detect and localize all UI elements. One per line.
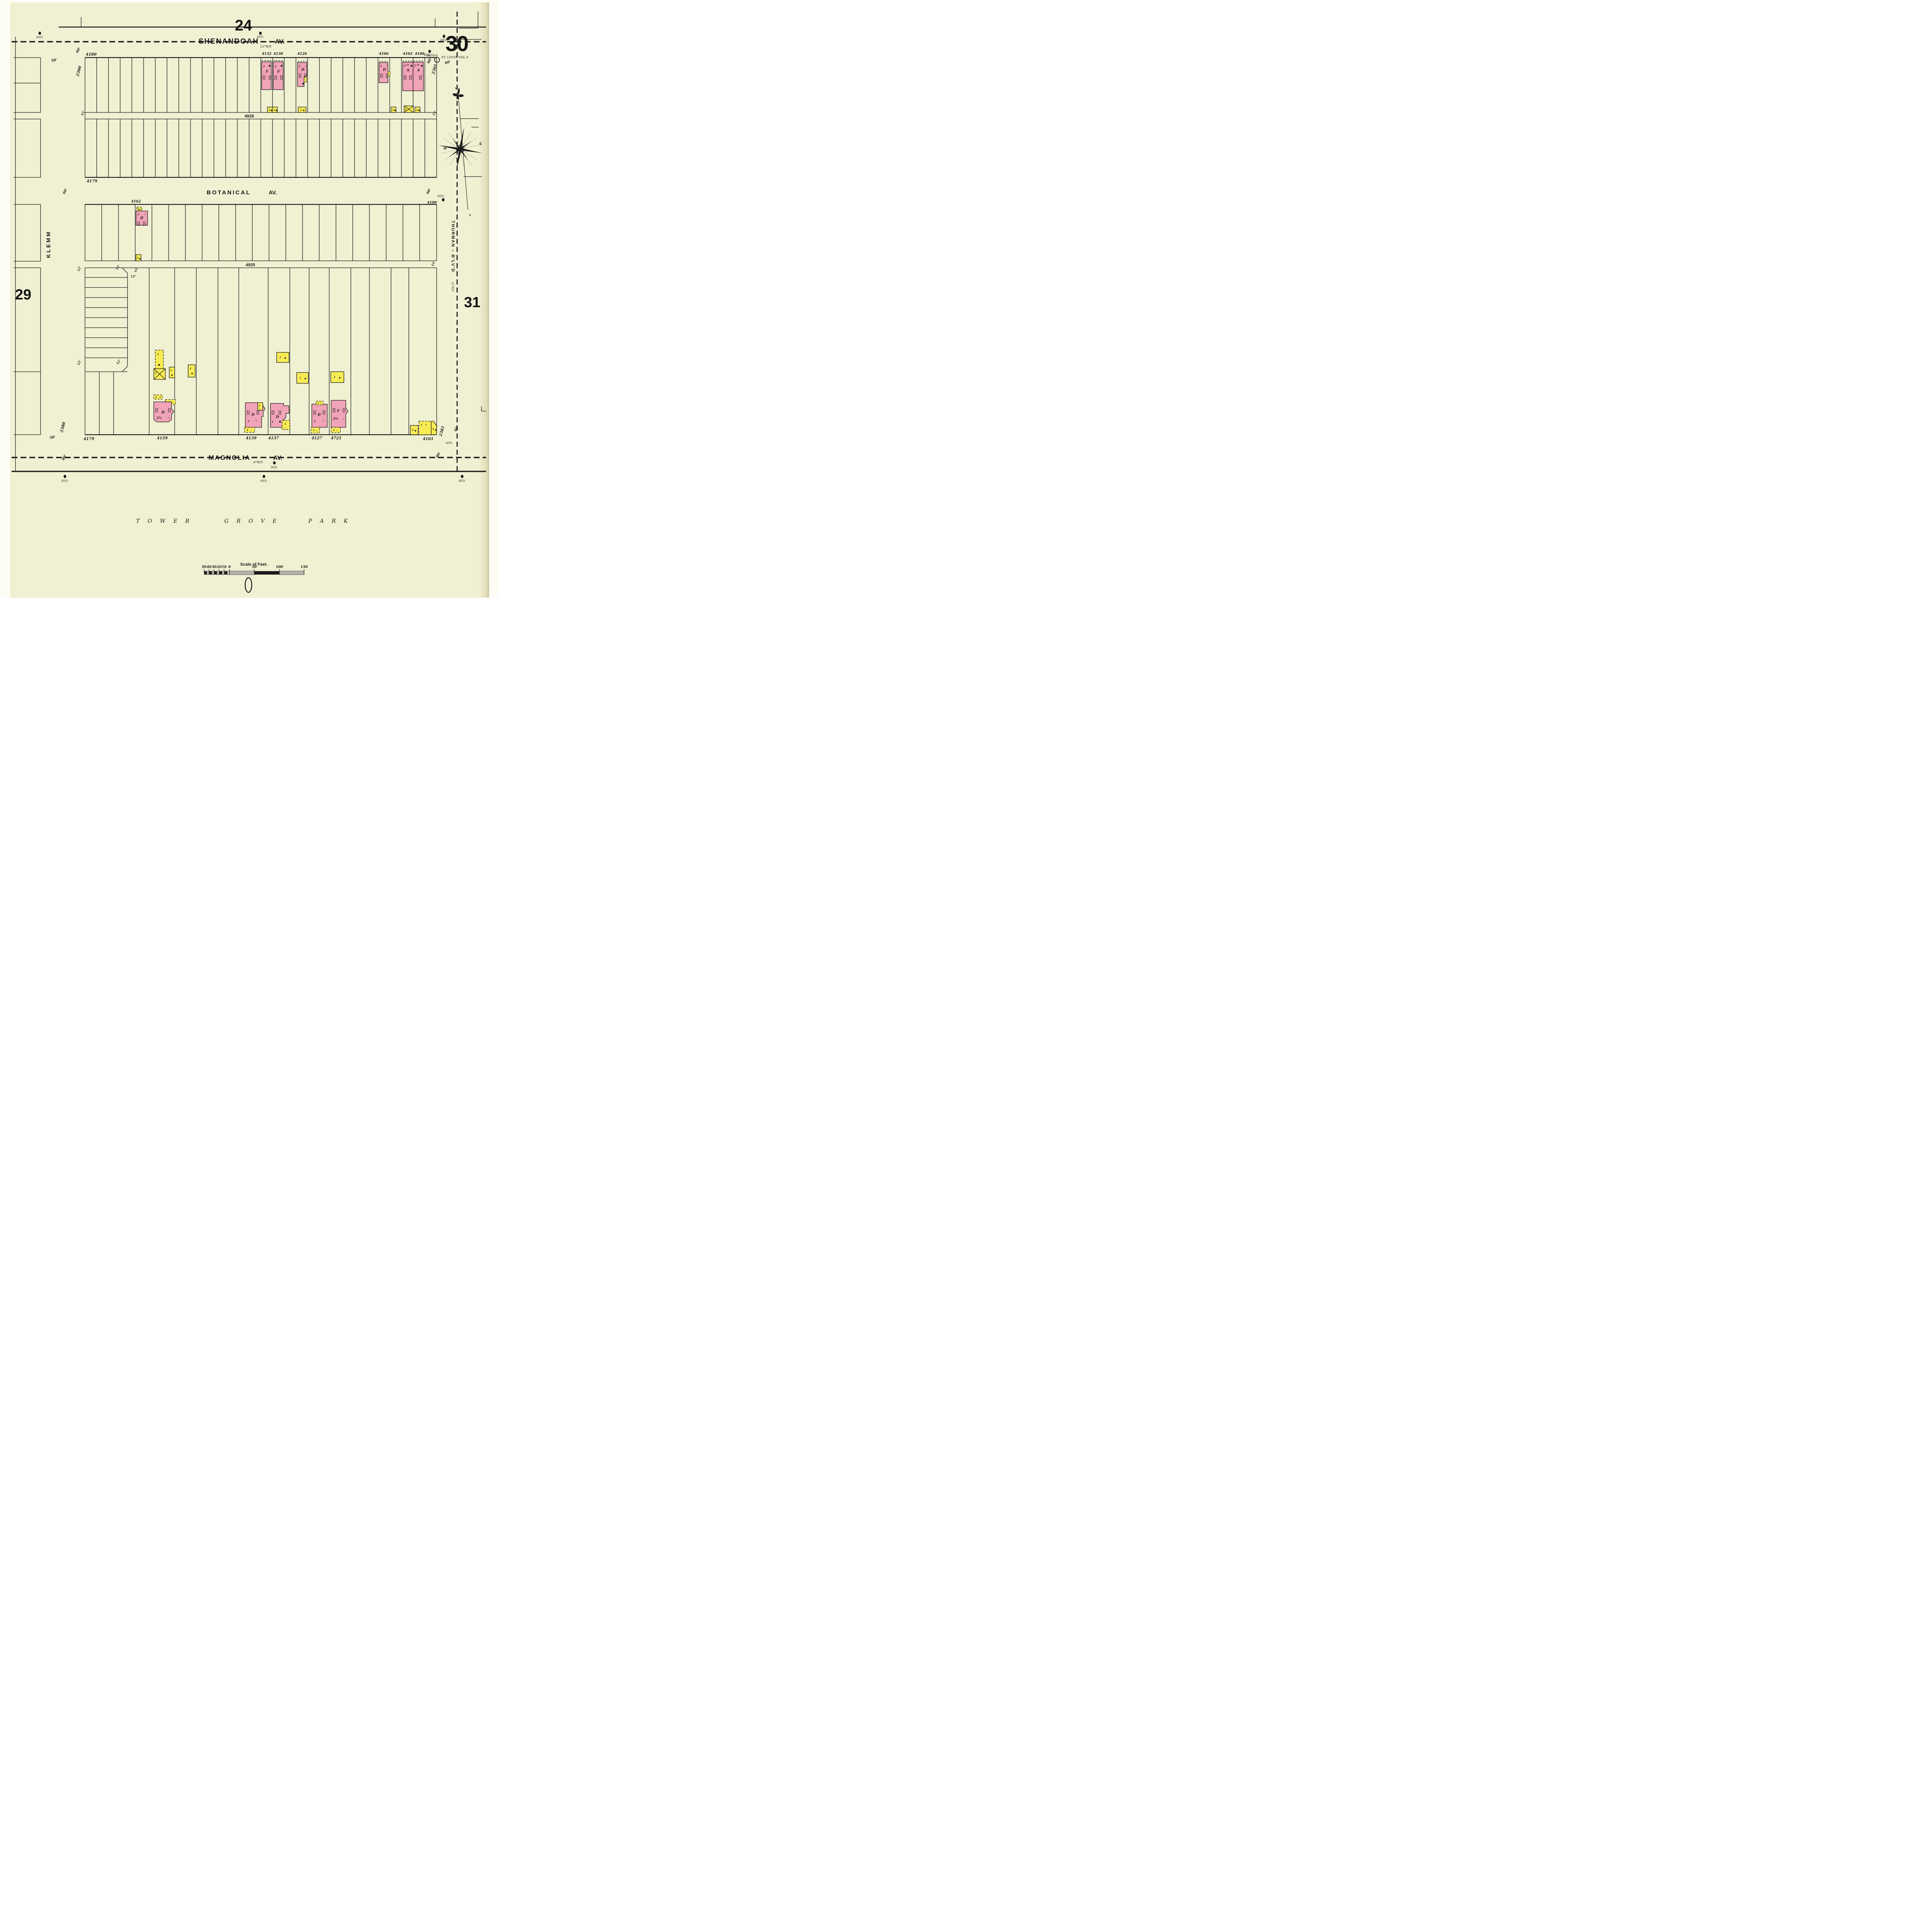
map-label: G R O V E	[224, 518, 279, 524]
building-annotation: ○	[386, 65, 388, 67]
building-annotation: 12	[342, 410, 345, 413]
building-annotation: D	[251, 413, 255, 417]
building-annotation: 1o	[138, 208, 141, 211]
building-annotation: S	[407, 69, 410, 73]
building-annotation: 26'	[406, 64, 410, 66]
map-label: ST. LOUIS VOL.9	[441, 56, 468, 59]
map-label: 4179	[83, 437, 94, 441]
dwelling-4159: 1212D12122½○	[154, 402, 174, 422]
adjacent-sheet-number-north: 24	[232, 17, 255, 34]
building-annotation: D	[383, 68, 386, 72]
building-annotation: 1	[155, 396, 157, 399]
building-annotation: 12	[313, 413, 316, 415]
building-annotation: 1	[334, 376, 335, 379]
map-label: 4130	[273, 52, 283, 56]
hydrant-dot	[39, 32, 41, 35]
building-annotation: D	[301, 68, 304, 72]
building-annotation: F	[277, 70, 280, 74]
porch-4127b-outline	[311, 427, 320, 433]
scale-title: Scale of Feet.	[240, 562, 268, 567]
building-annotation: 2	[380, 65, 382, 68]
scale-segment	[279, 571, 304, 575]
scale-tick-label: 10	[222, 565, 227, 569]
dwelling-4106: 2D○12121212	[379, 63, 388, 83]
building-annotation: 12	[380, 76, 383, 78]
dwelling-4162: 2D○12121212	[136, 211, 148, 226]
hydrant-dot	[263, 475, 265, 478]
hydrant-dot	[64, 475, 66, 478]
building-annotation: 12	[137, 224, 140, 226]
shed: 1●	[331, 372, 344, 383]
building-annotation: 12	[332, 410, 335, 413]
building-annotation: 2	[271, 421, 273, 423]
building-annotation: 1	[412, 429, 413, 432]
map-label: W	[444, 147, 447, 150]
map-label: HYD.	[446, 442, 453, 445]
shed-4101: 1✕	[419, 421, 431, 435]
map-label: T O W E R	[136, 518, 192, 524]
building-annotation: ○	[255, 419, 257, 422]
building-annotation: 12	[280, 78, 283, 80]
building-annotation: D	[161, 411, 165, 415]
scale-segment	[217, 571, 219, 575]
building-annotation: 12	[168, 410, 171, 413]
scale-tick-label: 0	[228, 565, 231, 569]
building-annotation: 1	[392, 109, 394, 112]
building-annotation: ●	[279, 420, 281, 423]
building-annotation: ●	[270, 109, 272, 112]
building-annotation: ●	[303, 109, 305, 112]
building-annotation: 12	[247, 413, 250, 415]
dwelling-4127: 1212D12122○	[312, 404, 327, 427]
scale-tick-label: 20	[216, 565, 222, 569]
scale-tick-label: 40	[207, 565, 212, 569]
shed-4106-outline	[388, 72, 390, 76]
porch-4159: 1✕	[154, 395, 162, 399]
map-label: SHENANDOAH	[199, 37, 259, 46]
map-label: HYD.	[437, 195, 444, 198]
building-annotation: ●	[191, 372, 193, 375]
building-annotation: 12	[256, 413, 259, 415]
paper	[10, 2, 489, 598]
map-label: 4926	[245, 114, 254, 119]
scale-segment	[212, 571, 214, 575]
building-annotation: D	[140, 216, 143, 220]
building-annotation: ○	[259, 408, 261, 410]
building-annotation: ○	[250, 429, 252, 432]
building-annotation: 2	[137, 213, 139, 216]
map-label: 6"W.P.	[253, 461, 263, 464]
building-annotation: 1	[318, 402, 319, 405]
building-annotation: ●	[415, 430, 417, 432]
map-label: 12"W.P.	[260, 45, 272, 48]
flat-4721-outline	[331, 400, 348, 427]
building-annotation: 26'	[416, 64, 420, 66]
building-annotation: ●	[281, 65, 282, 67]
building-annotation: 12	[298, 76, 301, 78]
map-label: 4162	[131, 200, 141, 204]
shed: 1●	[391, 107, 396, 112]
building-annotation: 12	[262, 78, 265, 80]
map-label: THURMAN – B'LV'D	[451, 221, 455, 272]
map-label: 4137	[268, 436, 279, 440]
shed: 1●	[188, 365, 195, 377]
scale-tick-label: 100	[276, 565, 284, 569]
map-label: 4102	[403, 52, 412, 56]
building-annotation: 1	[333, 429, 335, 432]
building-annotation: ●	[284, 357, 286, 359]
shed-outline	[331, 372, 344, 383]
building-annotation: ●	[418, 109, 420, 112]
map-label: 4100	[427, 201, 437, 205]
building-annotation: 1	[284, 423, 286, 426]
map-label: P A R K	[308, 518, 351, 524]
building-annotation: ●	[171, 374, 173, 376]
building-annotation: ●	[276, 109, 277, 112]
shed-outline	[297, 372, 308, 383]
building-annotation: ●	[435, 429, 437, 431]
map-label: HYD.	[458, 480, 466, 483]
map-label: HYD.	[423, 54, 431, 57]
map-label: 4126	[297, 52, 307, 56]
building-annotation: 2	[313, 420, 315, 423]
shed-outline	[298, 107, 306, 112]
map-label: 4139	[246, 436, 257, 440]
building-annotation: 12	[403, 78, 406, 80]
shed: 1●	[277, 352, 289, 362]
building-annotation: F	[337, 409, 340, 413]
shed: 1●	[410, 425, 418, 435]
building-annotation: ●	[302, 82, 304, 85]
scale-segment	[227, 571, 230, 575]
map-label: 4106	[379, 52, 389, 56]
building-annotation: 1	[416, 109, 418, 112]
map-label: HYD.	[270, 466, 278, 469]
building-annotation: 2	[403, 65, 405, 67]
porch-4137: 1○	[282, 420, 290, 430]
flat-4721: 1212F12122½○	[331, 400, 348, 427]
building-annotation: ●	[269, 65, 270, 67]
barn: 1●	[155, 350, 163, 369]
building-annotation: 12	[155, 410, 158, 413]
adjacent-sheet-number-west: 29	[12, 287, 35, 303]
building-annotation: 1	[313, 429, 315, 432]
scale-tick-label: 150	[301, 565, 308, 569]
map-label: N	[455, 87, 457, 90]
map-canvas: 2F●121212122F●121212122D○12121212●○2D○12…	[0, 0, 498, 598]
building-annotation: 1	[279, 356, 281, 359]
adjacent-sheet-number-east: 31	[461, 294, 484, 311]
building-annotation: 1	[190, 367, 191, 370]
building-annotation: 2½	[333, 417, 338, 420]
building-annotation: ●	[158, 364, 160, 366]
shed-4106	[388, 72, 390, 76]
building-annotation: ●	[339, 377, 341, 379]
map-label: AV.	[275, 38, 285, 45]
shed-outline	[410, 425, 418, 435]
building-annotation: ○	[320, 402, 322, 405]
building-annotation: 2	[247, 420, 249, 423]
porch-4139b: 1○	[245, 427, 255, 432]
building-annotation: 1	[299, 377, 301, 379]
building-annotation: 1	[137, 257, 139, 260]
building-annotation: 12	[271, 413, 274, 415]
building-annotation: ○	[342, 418, 344, 420]
building-annotation: 1	[300, 109, 302, 112]
store-4100: 226'S●1212	[413, 62, 423, 91]
porch-4127t: 1○	[316, 401, 323, 405]
porch-4139t: 1○	[258, 403, 263, 410]
hydrant-dot	[429, 50, 431, 53]
shed: 1●	[415, 107, 420, 112]
scale-tick-label: 50	[202, 565, 207, 569]
building-annotation: ○	[144, 213, 146, 216]
map-label: HYD.	[36, 36, 43, 39]
building-annotation: 2	[414, 65, 416, 67]
porch-4139b-outline	[245, 427, 255, 432]
hydrant-dot	[461, 475, 464, 478]
shed-4101-outline	[419, 421, 431, 435]
building-annotation: ●	[421, 65, 423, 67]
map-label: 4101	[423, 437, 434, 441]
building-annotation: D	[276, 415, 279, 419]
porch-4127b: 1○	[311, 427, 320, 433]
sanborn-map-sheet: 2F●121212122F●121212122D○12121212●○2D○12…	[0, 0, 498, 598]
map-label: KLEMM	[45, 230, 51, 258]
building-annotation: D	[317, 413, 321, 417]
porch-4721-outline	[331, 427, 340, 433]
sheet-number: 30	[441, 31, 472, 56]
building-annotation: 12	[409, 78, 412, 80]
map-label: HYD.	[257, 36, 264, 39]
shed-outline	[188, 365, 195, 377]
building-annotation: 1	[274, 109, 275, 112]
scale-tick-label: 30	[212, 565, 217, 569]
shed: 1●	[267, 107, 272, 112]
store-4102: 226'S●12121212	[403, 62, 413, 91]
porch-4721: 1○	[331, 427, 340, 433]
building-annotation: 12	[322, 413, 325, 415]
scale-cell	[204, 571, 207, 575]
map-label: HYD.	[260, 480, 267, 483]
scale-cell	[224, 571, 227, 575]
building-annotation: ○	[322, 419, 324, 422]
map-label: HYD.	[61, 480, 68, 483]
shed: 1●	[297, 372, 308, 383]
building-annotation: F	[265, 70, 269, 74]
building-annotation: 2	[155, 372, 156, 374]
shed: 1●	[169, 367, 175, 378]
map-label: 4159	[157, 436, 168, 440]
scale-segment	[222, 571, 224, 575]
map-label: S	[469, 214, 471, 217]
flat-4132: 2F●12121212	[262, 62, 271, 90]
building-annotation: 12	[274, 78, 277, 80]
building-annotation: ●	[410, 65, 412, 67]
building-annotation: ●	[304, 378, 306, 380]
map-label: AV.	[269, 189, 277, 196]
building-annotation: 12	[385, 76, 388, 78]
scale-segment	[230, 571, 254, 575]
building-annotation: ○	[285, 427, 286, 430]
map-label: E	[480, 142, 482, 146]
shed: 1●	[136, 255, 141, 261]
building-annotation: 1	[170, 369, 172, 372]
building-annotation: 1	[405, 109, 406, 111]
building-annotation: 12	[268, 78, 271, 80]
scale-cell	[219, 571, 222, 575]
building-annotation: 1	[269, 109, 270, 112]
hydrant-dot	[259, 32, 262, 35]
shed: 1●	[298, 107, 306, 112]
map-label: 4925	[246, 263, 255, 267]
building-annotation: 2	[298, 65, 300, 68]
map-label: 4132	[262, 52, 271, 56]
building-annotation: 1	[247, 429, 248, 432]
auto-shed: 1	[404, 106, 413, 112]
building-annotation: ○	[316, 430, 318, 432]
map-label: 12'	[131, 274, 136, 278]
building-annotation: 12	[143, 224, 146, 226]
map-label: 4721	[331, 436, 342, 440]
building-annotation: 1	[157, 353, 159, 356]
building-annotation: 2	[263, 65, 265, 68]
building-annotation: ○	[336, 430, 338, 432]
shed-4126: ○	[304, 77, 307, 82]
building-annotation: 1	[421, 424, 422, 427]
shed-4162: 1o	[137, 207, 142, 211]
building-annotation: 1	[259, 405, 260, 407]
building-annotation: ●	[139, 258, 141, 260]
building-annotation: S	[417, 69, 420, 73]
map-label: 4180	[86, 53, 97, 57]
map-label: AV.	[273, 455, 282, 461]
hydrant-dot	[273, 461, 276, 464]
map-label: 4100	[415, 52, 425, 56]
building-annotation: 12	[419, 78, 422, 80]
map-label: 4127	[311, 436, 322, 440]
building-annotation: ○	[168, 417, 170, 419]
auto-shed: 2	[154, 369, 165, 379]
scale-cell	[209, 571, 212, 575]
building-annotation: ●	[394, 109, 396, 112]
hydrant-dot	[442, 198, 445, 201]
scale-segment	[207, 571, 209, 575]
building-annotation: 2½	[156, 416, 162, 420]
building-annotation: 12	[278, 413, 281, 415]
scale-cell	[214, 571, 217, 575]
scale-segment	[254, 571, 279, 575]
building-annotation: ○	[305, 80, 306, 82]
map-label: BOTANICAL	[207, 189, 251, 196]
map-label: 12"W.P.	[451, 282, 454, 292]
building-annotation: 2	[274, 65, 276, 68]
map-label: MAGNOLIA	[209, 454, 251, 461]
shed: 1●	[272, 107, 277, 112]
building-annotation: 1	[432, 428, 434, 430]
map-label: 4179	[87, 179, 97, 184]
shed-outline	[277, 352, 289, 362]
flat-4130: 2F●12121212	[273, 62, 283, 90]
building-annotation: ○	[305, 65, 307, 67]
